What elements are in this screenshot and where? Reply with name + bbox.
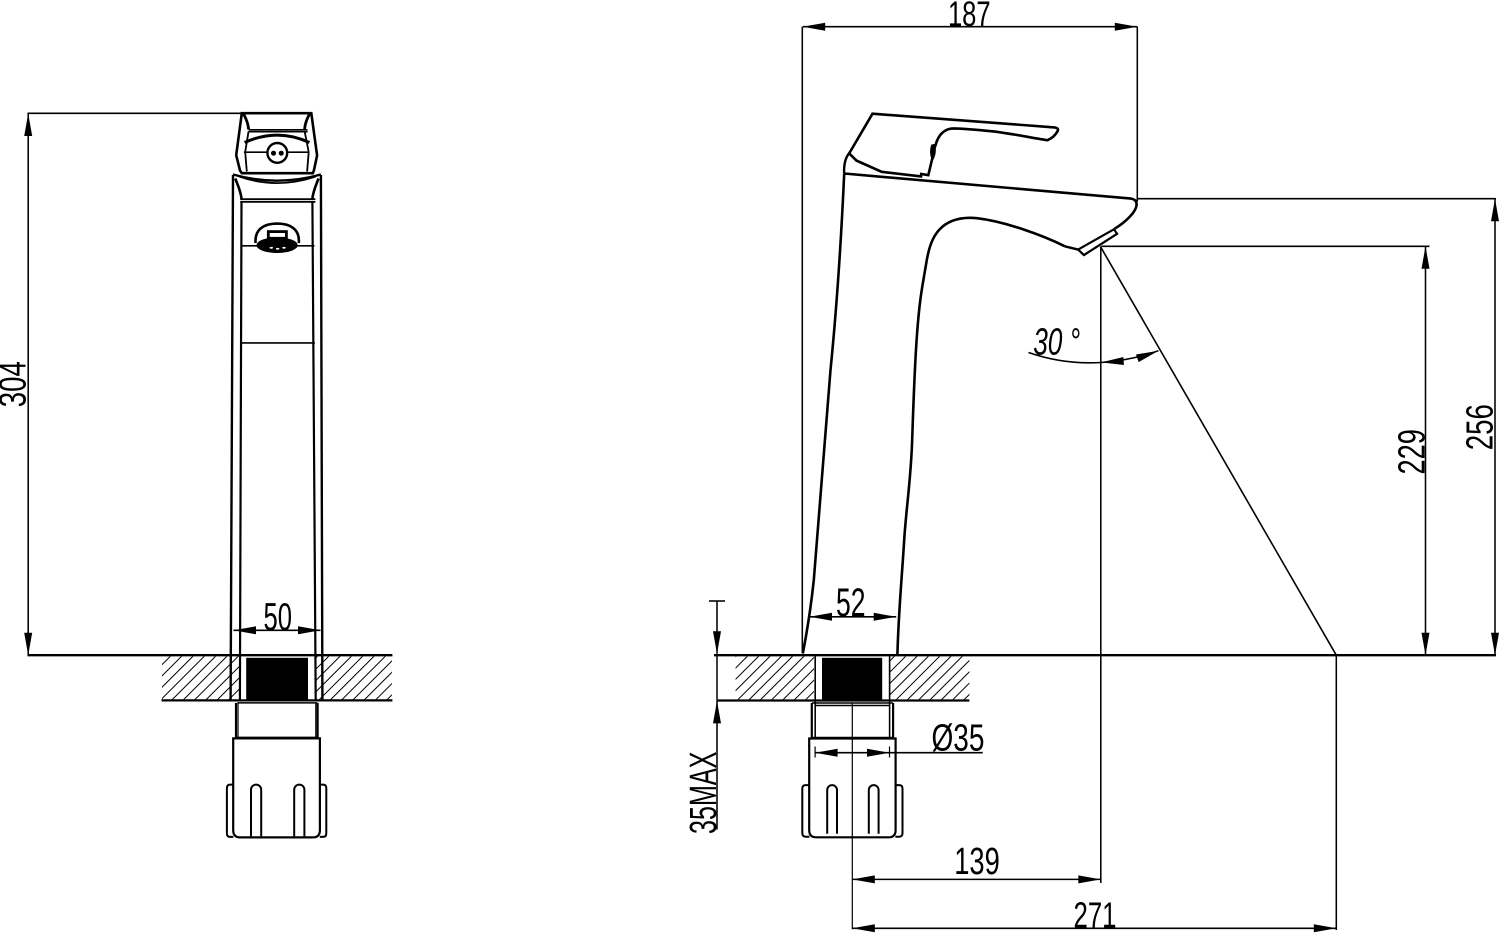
- svg-text:30 °: 30 °: [1033, 322, 1080, 364]
- svg-text:50: 50: [263, 596, 292, 639]
- svg-text:304: 304: [0, 361, 35, 407]
- svg-text:Ø35: Ø35: [932, 718, 985, 760]
- svg-text:229: 229: [1392, 429, 1434, 474]
- svg-text:139: 139: [954, 841, 1000, 883]
- svg-text:256: 256: [1459, 404, 1500, 450]
- svg-text:187: 187: [948, 0, 991, 34]
- svg-text:52: 52: [836, 581, 866, 625]
- svg-text:271: 271: [1074, 894, 1117, 935]
- svg-text:35MAX: 35MAX: [683, 752, 725, 834]
